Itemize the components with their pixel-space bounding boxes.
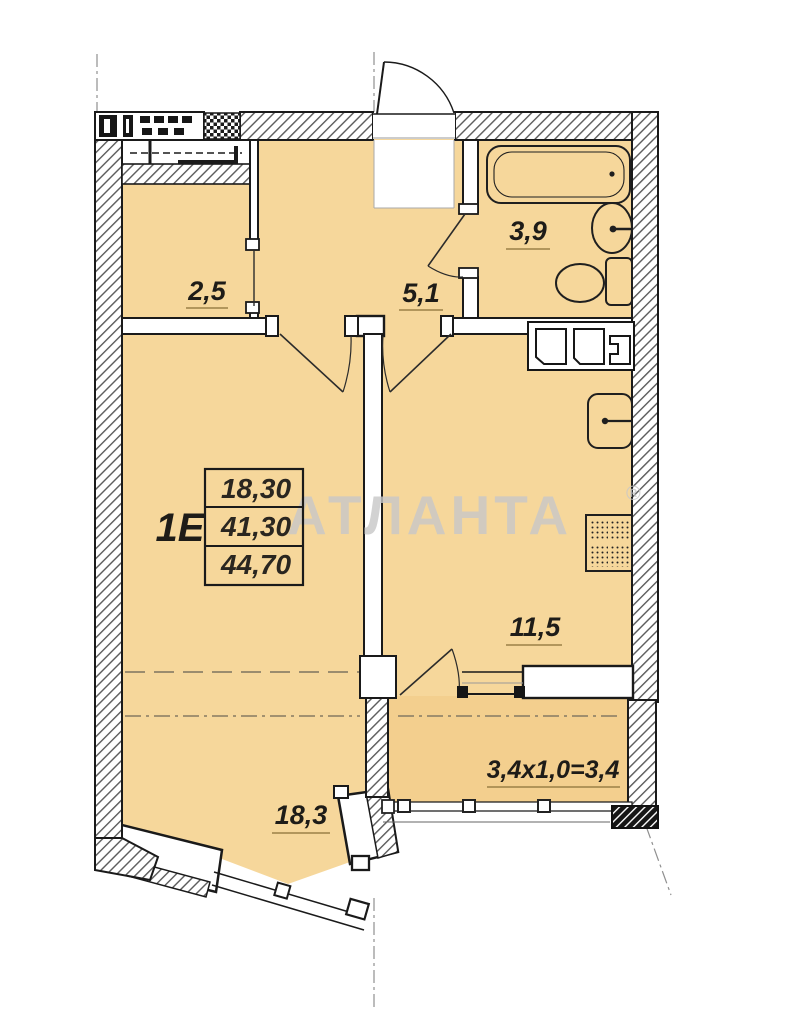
railing-post	[463, 800, 475, 812]
kitchen-balcony-wall	[523, 666, 633, 698]
entrance-threshold	[374, 140, 454, 208]
left-wall	[95, 112, 122, 838]
bathtub-drain	[609, 171, 614, 176]
label-balcony-formula: 3,4х1,0=3,4	[487, 756, 620, 784]
sink-faucet	[610, 226, 617, 233]
top-wall-left	[240, 112, 373, 140]
bay-window-post	[274, 883, 290, 899]
railing-post	[538, 800, 550, 812]
balcony-jamb-block	[360, 656, 396, 698]
top-wall-right	[455, 112, 658, 140]
burner-icon	[611, 519, 630, 540]
burner-icon	[611, 546, 630, 567]
right-wall-balcony	[628, 700, 656, 808]
railing-post	[382, 800, 394, 813]
bathroom-wall-lower	[463, 277, 478, 318]
balcony-corner-block	[612, 806, 658, 828]
label-living-room-area: 18,3	[275, 800, 328, 830]
label-kitchen-area: 11,5	[510, 612, 562, 642]
burner-icon	[589, 546, 608, 567]
table-cell-row3: 44,70	[220, 549, 291, 580]
bay-balcony-wall	[366, 698, 388, 797]
label-hallway-area: 5,1	[402, 278, 440, 308]
table-cell-row1: 18,30	[221, 473, 291, 504]
balcony-floor	[388, 696, 632, 808]
registered-trademark-icon: ®	[626, 483, 641, 505]
watermark-brand: АТЛАНТА	[287, 484, 572, 546]
floor-plan: АТЛАНТА ® 18,30 41,30 44,70 1Е 2,5 5,1 3…	[0, 0, 800, 1030]
table-cell-row2: 41,30	[220, 511, 291, 542]
washer-icon	[574, 329, 604, 364]
floor-plan-svg: АТЛАНТА ® 18,30 41,30 44,70 1Е 2,5 5,1 3…	[0, 0, 800, 1030]
burner-icon	[589, 519, 608, 540]
railing-post	[398, 800, 410, 812]
kitchen-faucet	[602, 418, 608, 424]
right-wall	[632, 112, 658, 702]
window-post	[457, 686, 468, 698]
bathroom-wall-upper	[463, 140, 478, 212]
washer-icon	[536, 329, 566, 364]
checker-wall-block	[204, 113, 240, 139]
label-closet-area: 2,5	[187, 276, 227, 306]
window-post	[514, 686, 525, 698]
unit-label: 1Е	[156, 506, 206, 550]
label-bathroom-area: 3,9	[509, 216, 547, 246]
appliance-counter	[528, 322, 634, 370]
